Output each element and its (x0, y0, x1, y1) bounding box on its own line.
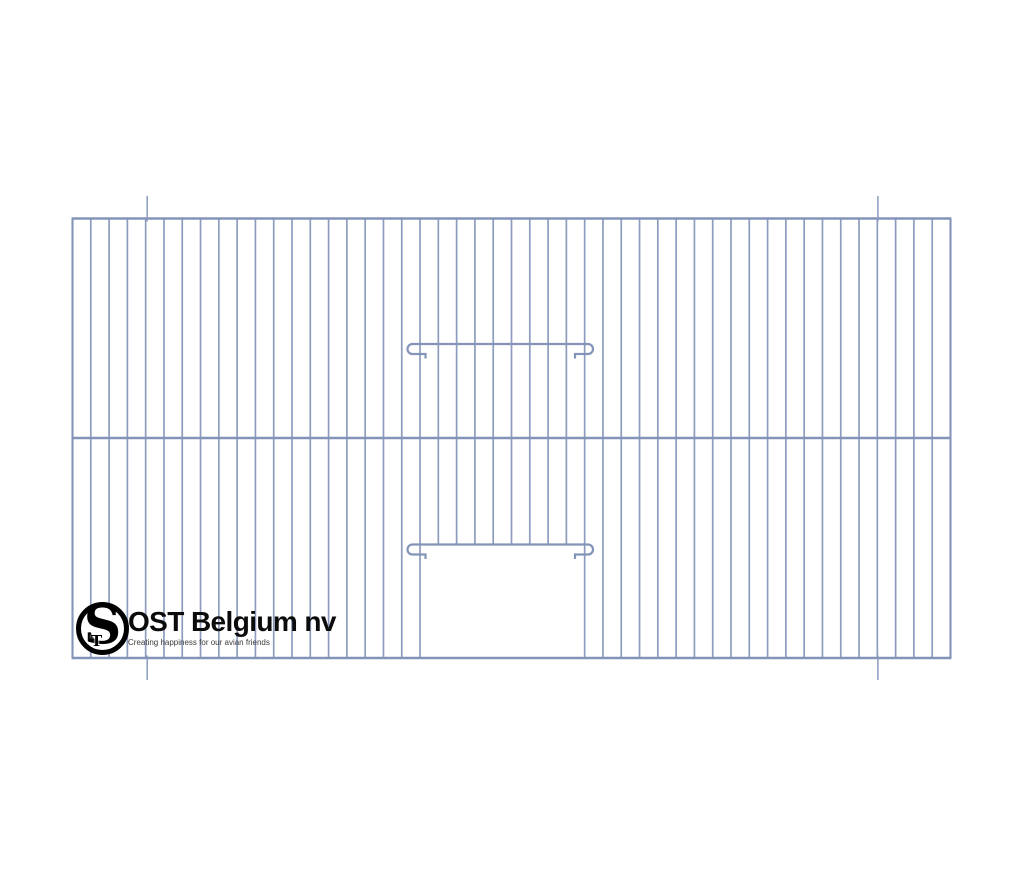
cage-front-drawing (0, 0, 1024, 878)
brand-tagline: Creating happiness for our avian friends (128, 639, 336, 647)
door-slide-wire-left-hook (408, 545, 426, 560)
monogram-letter-t: T (91, 634, 102, 649)
brand-logo: S T OST Belgium nv Creating happiness fo… (76, 602, 336, 655)
brand-text-block: OST Belgium nv Creating happiness for ou… (128, 602, 336, 647)
drawing-page: S T OST Belgium nv Creating happiness fo… (0, 0, 1024, 878)
upper-slide-wire-left-hook (408, 344, 426, 359)
brand-name: OST Belgium nv (128, 608, 336, 636)
ost-monogram-icon: S T (76, 602, 129, 655)
monogram-letter-s: S (84, 600, 122, 652)
